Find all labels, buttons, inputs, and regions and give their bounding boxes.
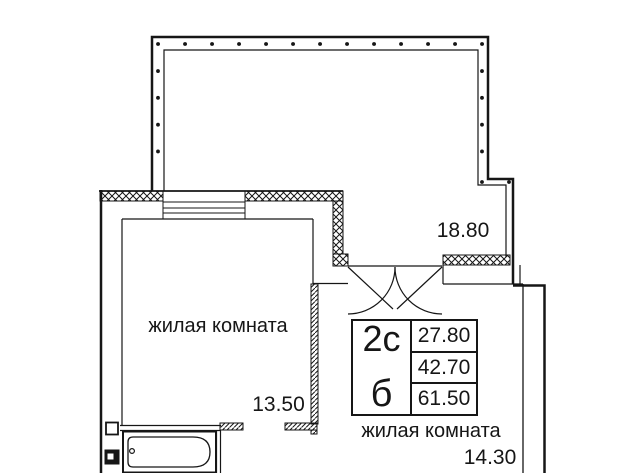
terrace-dimension: 18.80 xyxy=(435,220,491,241)
window xyxy=(163,191,245,219)
apartment-info-table: 2с б 27.80 42.70 61.50 xyxy=(351,319,478,416)
area-value-row: 27.80 xyxy=(412,321,476,353)
railing-posts xyxy=(158,44,511,184)
area-value-row: 42.70 xyxy=(412,353,476,385)
right-exterior-wall xyxy=(513,284,545,473)
vent-shaft-icon xyxy=(106,423,118,435)
area-value-row: 61.50 xyxy=(412,384,476,414)
living-room-right-dimension: 14.30 xyxy=(462,447,518,468)
bathtub xyxy=(123,432,216,473)
apartment-type-code: 2с xyxy=(362,322,400,356)
floor-plan: 18.80 жилая комната 13.50 жилая комната … xyxy=(0,0,640,473)
wall-shaft-symbols xyxy=(105,423,119,465)
living-room-left-label: жилая комната xyxy=(144,316,292,336)
french-doors xyxy=(348,266,442,314)
apartment-type-cell: 2с б xyxy=(353,321,412,414)
living-room-left-dimension: 13.50 xyxy=(251,394,306,415)
apartment-section-code: б xyxy=(371,378,393,410)
apartment-areas-column: 27.80 42.70 61.50 xyxy=(412,321,476,414)
living-room-right-label: жилая комната xyxy=(357,421,505,441)
floor-plan-drawing xyxy=(0,0,640,473)
